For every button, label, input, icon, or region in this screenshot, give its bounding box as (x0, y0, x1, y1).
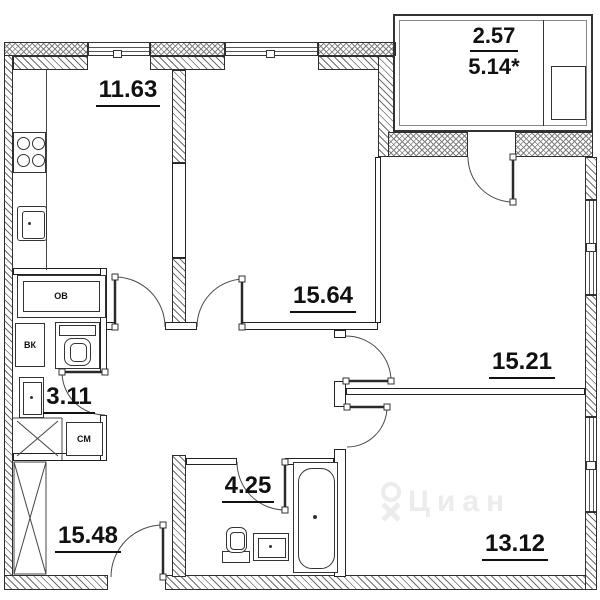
door-arc-room-middle (197, 279, 242, 327)
wall-left (4, 42, 13, 590)
wall-bathroom-large-left (172, 455, 186, 577)
partition-hall-top-3 (242, 322, 378, 330)
wall-kitchen-room-divider-bottom (172, 258, 186, 330)
wardrobe-cross-2 (14, 462, 46, 574)
window-mullion-mark-3 (586, 243, 596, 252)
bathroom-small-corner-diag-1 (17, 421, 58, 456)
wall-right-3 (585, 512, 597, 590)
window-mullion-mark-4 (586, 461, 596, 470)
balcony-unit-box (551, 66, 586, 120)
room-label-bathroom-small: 3.11 (40, 384, 98, 414)
wall-kitchen-room-divider-top (172, 70, 186, 163)
wardrobe-box (14, 462, 46, 574)
washing-machine-label: СМ (69, 435, 99, 444)
heating-unit-label: ОВ (46, 292, 76, 301)
stove (13, 132, 46, 173)
balcony-area-full: 5.14* (468, 52, 519, 78)
kitchen-sink (17, 206, 47, 241)
water-inlet-label: ВК (16, 341, 44, 350)
window-mullion-mark-1 (113, 50, 122, 58)
balcony-area-reduced: 2.57 (470, 24, 519, 52)
partition-bathroom-large-top-1 (186, 458, 237, 465)
watermark: Циан (378, 480, 511, 524)
wall-top-pier-1 (13, 56, 88, 70)
toilet-small-bowl (64, 338, 91, 366)
partition-hall-east-2 (334, 381, 346, 407)
wall-right-1 (585, 157, 597, 200)
room-label-bathroom-large: 4.25 (219, 473, 277, 503)
bathtub (293, 462, 338, 573)
wardrobe-cross-1 (14, 462, 46, 574)
room-label-kitchen: 11.63 (92, 77, 164, 107)
wall-top-pier-2 (150, 56, 225, 70)
watermark-brand: Циан (408, 485, 511, 519)
toilet-large-bowl (226, 527, 247, 553)
wall-right-2 (585, 295, 597, 417)
room-label-room-middle: 15.64 (287, 283, 359, 313)
door-arc-room-bottom-right (347, 407, 387, 447)
door-arc-balcony (468, 157, 513, 202)
bathroom-small-corner-diag-2 (17, 421, 58, 456)
door-arc-kitchen (115, 277, 165, 327)
wall-top-band-3 (318, 42, 396, 56)
partition-hall-east-1 (334, 330, 346, 338)
partition-room-middle-east (375, 157, 381, 323)
wall-top-band-2 (150, 42, 225, 56)
wall-top-band-1 (4, 42, 88, 56)
partition-bathroom-small-top (13, 268, 107, 275)
wall-balcony-band-right (515, 132, 593, 157)
wall-bottom-left (4, 575, 108, 590)
partition-rooms-right (346, 388, 585, 395)
balcony-divider (543, 20, 544, 126)
watermark-pin-icon (378, 480, 404, 524)
wall-balcony-band-left (388, 132, 468, 157)
wall-bottom-right (165, 575, 597, 590)
floor-plan: ОВ ВК СМ (0, 0, 600, 600)
partition-hall-top-2 (165, 322, 197, 330)
door-arc-room-right (346, 336, 391, 381)
room-label-room-right: 15.21 (486, 349, 558, 379)
room-label-balcony: 2.57 5.14* (448, 24, 540, 78)
shaft-box (172, 163, 186, 258)
room-label-hallway: 15.48 (52, 523, 124, 553)
room-label-room-bottom-right: 13.12 (479, 531, 551, 561)
washbasin-large (253, 533, 289, 561)
toilet-small-tank (59, 325, 96, 336)
window-mullion-mark-2 (266, 50, 275, 58)
